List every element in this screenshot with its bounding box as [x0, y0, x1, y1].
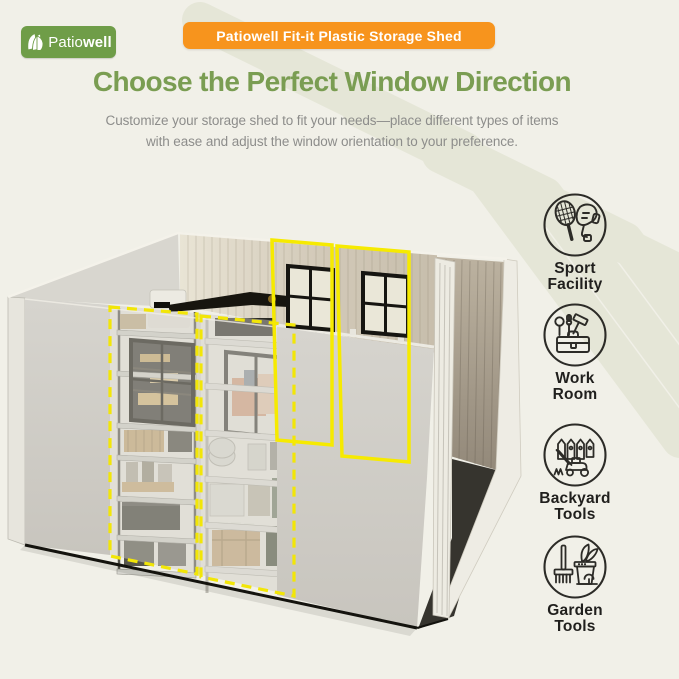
- use-case-label: WorkRoom: [510, 371, 640, 403]
- use-case-label: BackyardTools: [510, 491, 640, 523]
- banner-label: Patiowell Fit-it Plastic Storage Shed: [216, 28, 461, 44]
- use-case-label: GardenTools: [510, 603, 640, 635]
- tennis-racket-glove-icon: [542, 192, 608, 258]
- logo-text: Patiowell: [48, 34, 111, 51]
- shed-front-left-panel: [8, 297, 110, 555]
- page-title: Choose the Perfect Window Direction: [0, 66, 664, 98]
- fence-lawnmower-icon: [542, 422, 608, 488]
- product-banner: Patiowell Fit-it Plastic Storage Shed: [183, 22, 495, 49]
- toolbox-icon: [542, 302, 608, 368]
- use-case-work-room: WorkRoom: [510, 302, 640, 403]
- translucent-front-wall: [110, 305, 300, 597]
- use-case-label: SportFacility: [510, 261, 640, 293]
- use-case-backyard-tools: BackyardTools: [510, 422, 640, 523]
- shed-illustration: [0, 178, 540, 679]
- page-subtitle: Customize your storage shed to fit your …: [0, 110, 664, 152]
- rear-window-1: [288, 266, 333, 330]
- use-case-garden-tools: GardenTools: [510, 534, 640, 635]
- use-case-sport-facility: SportFacility: [510, 192, 640, 293]
- subtitle-line-2: with ease and adjust the window orientat…: [0, 131, 664, 152]
- product-infographic: { "page": { "background": "#f1f0e8", "wa…: [0, 0, 679, 679]
- rear-window-2: [363, 273, 408, 336]
- subtitle-line-1: Customize your storage shed to fit your …: [0, 110, 664, 131]
- patiowell-logo-pages-icon: [25, 31, 45, 53]
- rake-plant-pot-icon: [542, 534, 608, 600]
- patiowell-logo: Patiowell: [21, 26, 116, 58]
